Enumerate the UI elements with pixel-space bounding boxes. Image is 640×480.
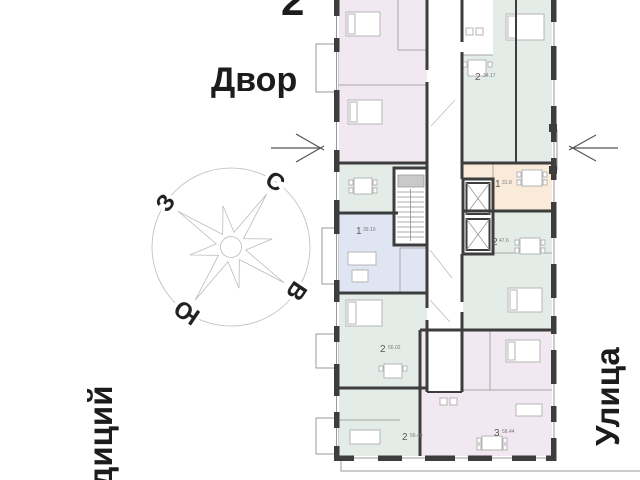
plot-boundary-line bbox=[341, 461, 640, 471]
apartment-number: 3 bbox=[494, 428, 500, 439]
compass-circle bbox=[152, 168, 310, 326]
compass-south-label: Ю bbox=[169, 294, 205, 330]
furniture-bed bbox=[346, 300, 382, 326]
apartment-area: 39.10 bbox=[363, 227, 376, 233]
apartment-number: 1 bbox=[495, 179, 501, 190]
compass-west-label: З bbox=[151, 189, 182, 217]
street-label-left: Традиций bbox=[82, 385, 119, 480]
apartment-number: 2 bbox=[492, 237, 498, 248]
courtyard-label: Двор bbox=[211, 61, 297, 99]
floor-plan-canvas: 2 Двор Традиций Улица С В Ю З bbox=[0, 0, 640, 480]
apartment-area: 56.48 bbox=[410, 433, 423, 439]
compass-star bbox=[142, 158, 320, 336]
apartment-number: 2 bbox=[475, 72, 481, 83]
apartment-area: 56.02 bbox=[388, 345, 401, 351]
furniture-bed bbox=[348, 100, 382, 124]
floorplan-page: 2 Двор Традиций Улица С В Ю З bbox=[0, 0, 640, 480]
street-label-right: Улица bbox=[589, 347, 626, 446]
furniture-bed bbox=[506, 340, 540, 362]
elevator-shaft bbox=[467, 219, 490, 250]
elevators bbox=[463, 179, 493, 254]
stair-landing bbox=[398, 175, 424, 187]
left-arrow bbox=[271, 134, 324, 162]
apartment-region-green-bottom-left[interactable] bbox=[339, 388, 428, 456]
corridor bbox=[427, 0, 463, 392]
furniture-bed bbox=[506, 14, 544, 40]
apartment-area: 58.44 bbox=[502, 429, 515, 435]
furniture-sofa bbox=[350, 430, 380, 444]
section-number: 2 bbox=[281, 0, 304, 24]
apartment-area: 34.17 bbox=[483, 73, 496, 79]
right-arrow bbox=[569, 135, 618, 161]
furniture-sofa bbox=[516, 404, 542, 416]
apartment-area: 31.8 bbox=[502, 180, 512, 186]
apartment-area: 47.6 bbox=[499, 238, 509, 244]
furniture-bed bbox=[346, 12, 380, 36]
compass-east-label: В bbox=[280, 276, 312, 305]
elevator-shaft bbox=[467, 183, 490, 214]
compass-north-label: С bbox=[260, 166, 289, 198]
compass-hub bbox=[216, 232, 245, 261]
compass: С В Ю З bbox=[103, 119, 358, 374]
furniture-table bbox=[515, 238, 545, 254]
staircase bbox=[394, 168, 427, 245]
apartment-number: 2 bbox=[380, 344, 386, 355]
furniture-table bbox=[517, 170, 547, 186]
apartment-number: 2 bbox=[402, 432, 408, 443]
furniture-table bbox=[477, 436, 507, 450]
furniture-bed bbox=[508, 288, 542, 312]
apartment-number: 1 bbox=[356, 226, 362, 237]
